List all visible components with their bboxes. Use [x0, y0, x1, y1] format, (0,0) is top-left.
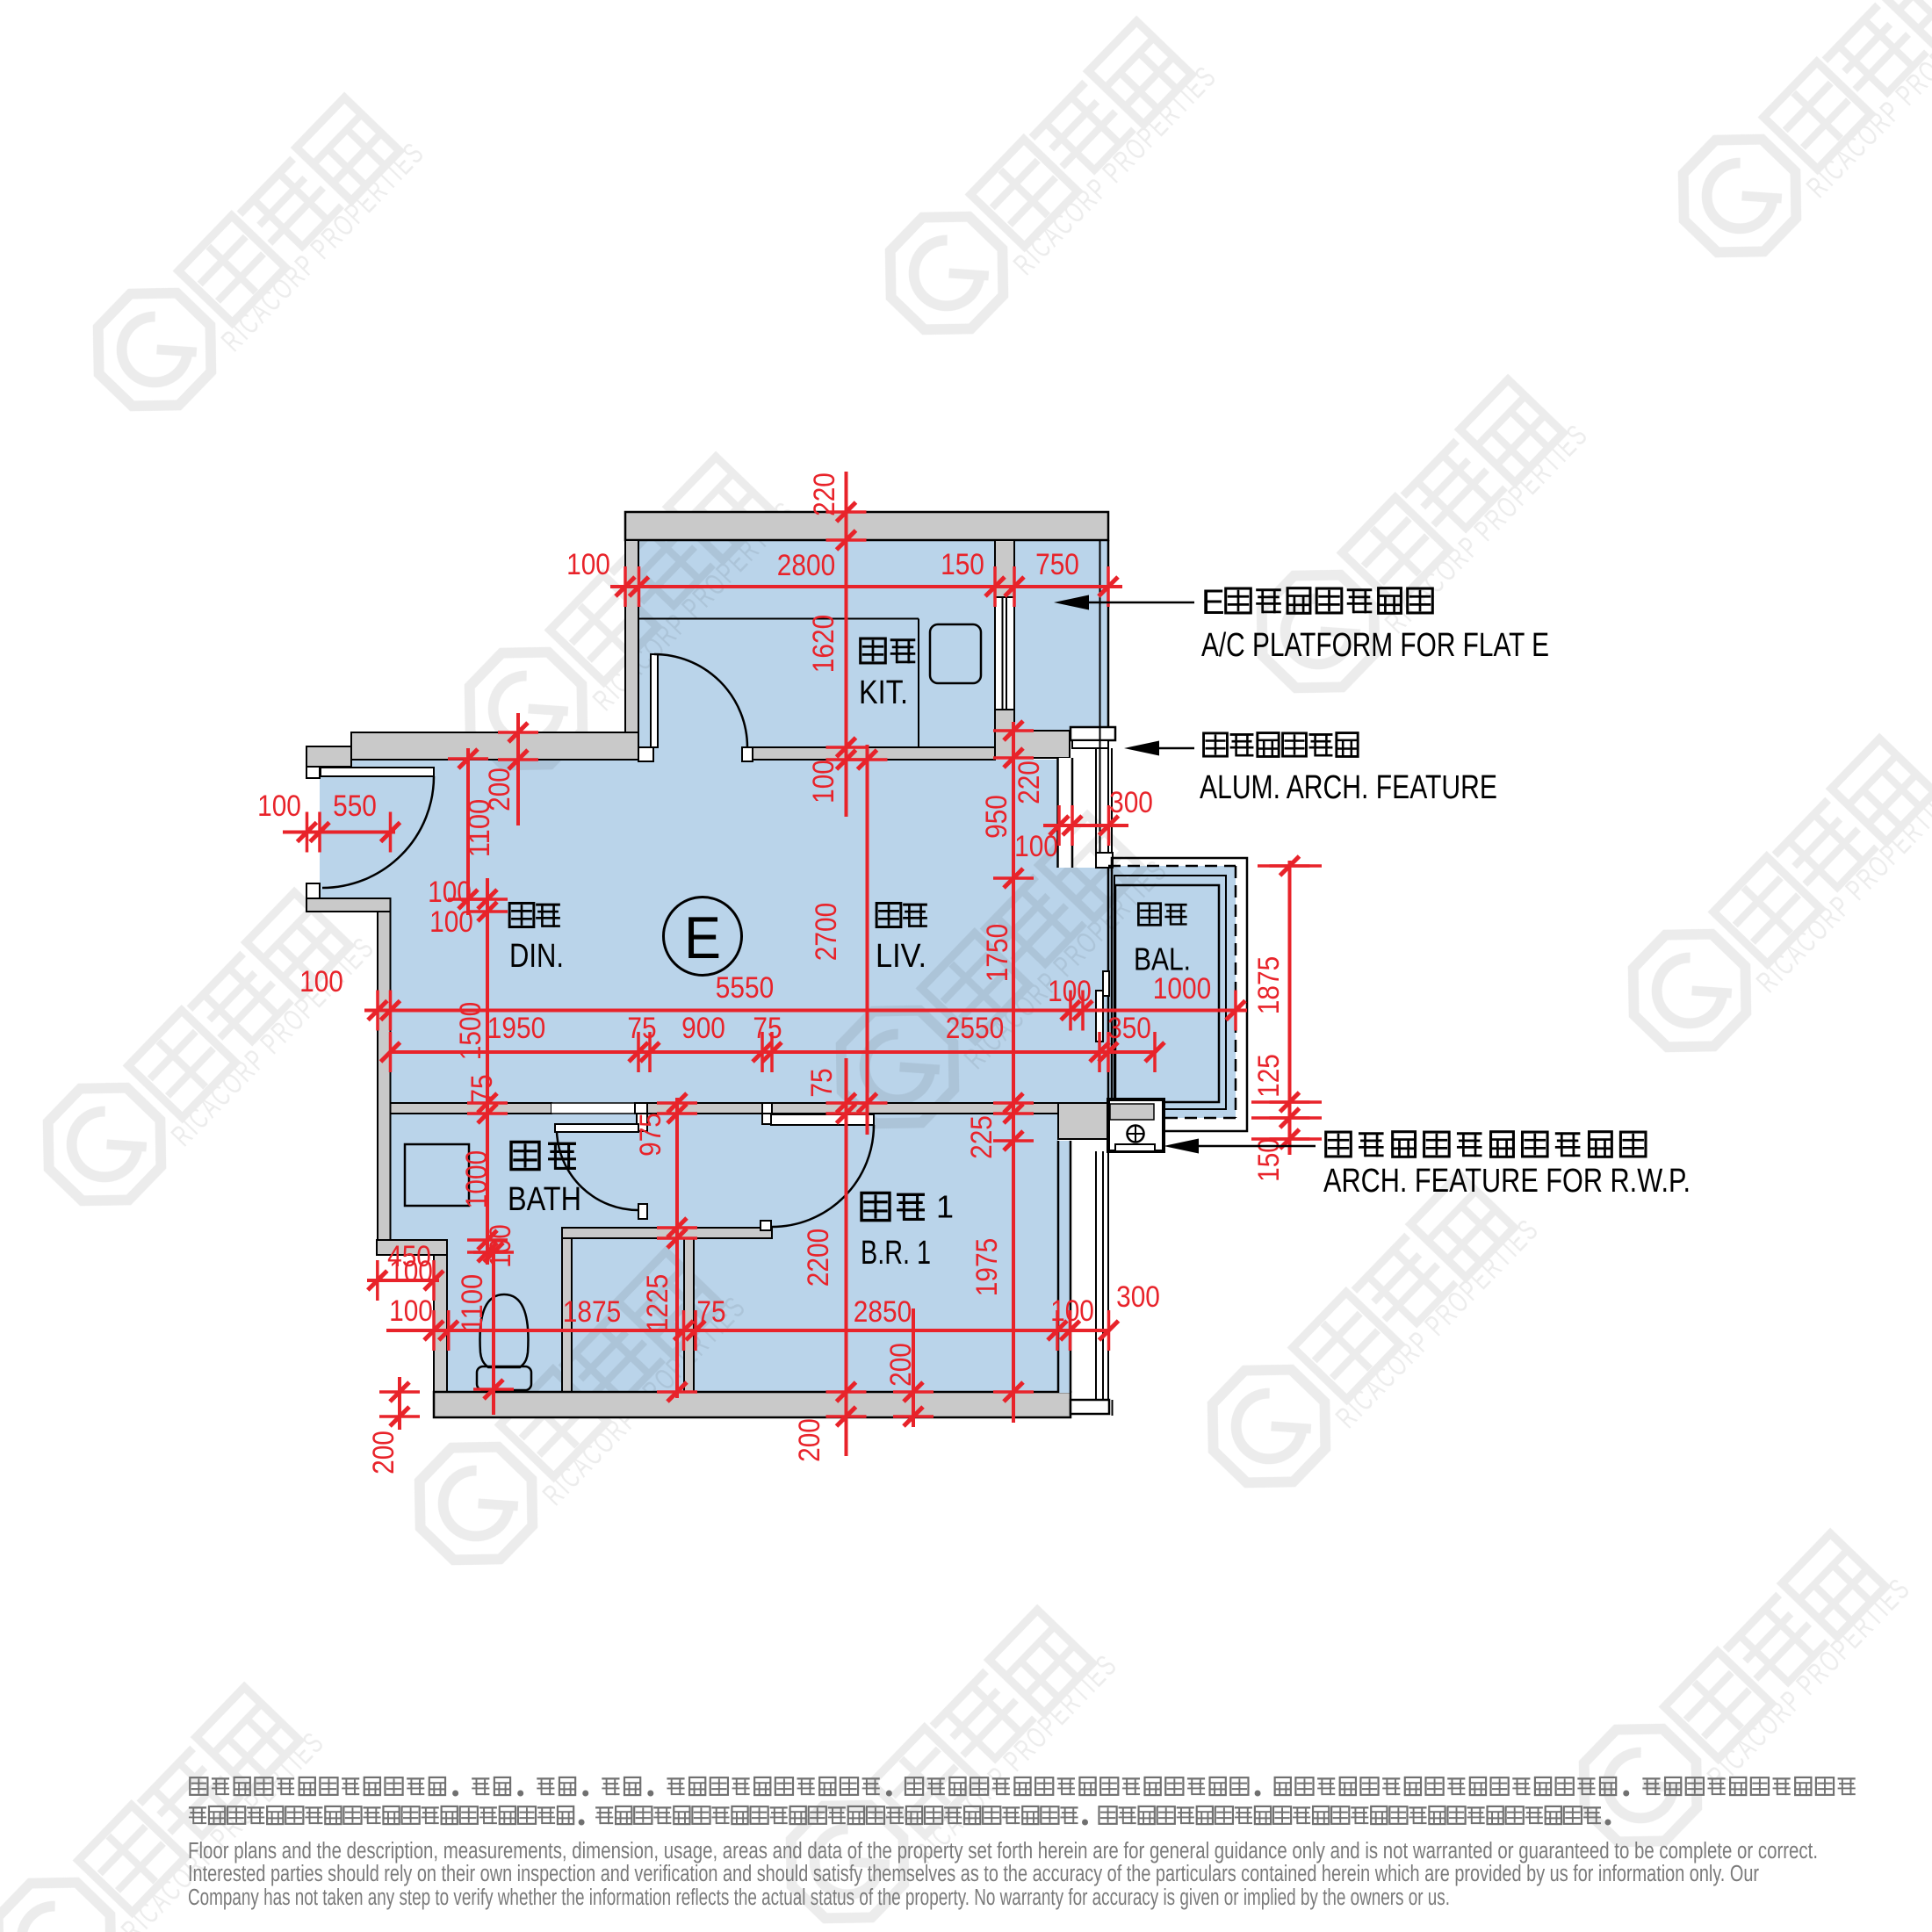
svg-text:950: 950 — [980, 795, 1013, 839]
svg-text:ARCH. FEATURE FOR R.W.P.: ARCH. FEATURE FOR R.W.P. — [1323, 1163, 1690, 1200]
svg-text:75: 75 — [753, 1012, 782, 1045]
svg-text:350: 350 — [1107, 1012, 1151, 1045]
svg-text:1000: 1000 — [460, 1150, 494, 1208]
svg-text:75: 75 — [805, 1068, 839, 1097]
svg-text:200: 200 — [884, 1343, 918, 1387]
svg-text:1000: 1000 — [1153, 972, 1211, 1006]
svg-text:2800: 2800 — [777, 549, 835, 582]
svg-text:100: 100 — [389, 1294, 433, 1328]
svg-text:75: 75 — [627, 1012, 656, 1045]
svg-text:550: 550 — [333, 789, 377, 823]
svg-text:125: 125 — [1252, 1054, 1286, 1098]
svg-text:1975: 1975 — [970, 1238, 1004, 1296]
svg-text:100: 100 — [429, 905, 473, 939]
svg-text:100: 100 — [428, 876, 472, 909]
svg-text:75: 75 — [696, 1295, 725, 1329]
svg-text:100: 100 — [566, 548, 610, 581]
svg-text:2550: 2550 — [946, 1012, 1004, 1045]
svg-text:975: 975 — [634, 1113, 667, 1157]
svg-text:LIV.: LIV. — [876, 938, 926, 975]
svg-text:ALUM. ARCH. FEATURE: ALUM. ARCH. FEATURE — [1200, 769, 1497, 806]
svg-text:DIN.: DIN. — [509, 938, 564, 975]
svg-text:KIT.: KIT. — [859, 674, 908, 711]
svg-text:Interested parties should rely: Interested parties should rely on their … — [188, 1862, 1759, 1886]
svg-text:E: E — [1201, 583, 1225, 622]
svg-text:75: 75 — [465, 1074, 499, 1103]
svg-text:300: 300 — [1109, 786, 1153, 819]
svg-text:900: 900 — [681, 1012, 725, 1045]
svg-text:150: 150 — [941, 548, 984, 581]
svg-text:A/C PLATFORM FOR FLAT E: A/C PLATFORM FOR FLAT E — [1201, 627, 1549, 664]
svg-text:1500: 1500 — [454, 1002, 487, 1060]
svg-text:100: 100 — [389, 1255, 433, 1288]
svg-text:1620: 1620 — [807, 615, 840, 673]
svg-text:100: 100 — [807, 760, 840, 804]
svg-text:2850: 2850 — [854, 1295, 912, 1329]
svg-text:100: 100 — [1048, 975, 1092, 1008]
svg-text:5550: 5550 — [716, 971, 774, 1005]
svg-text:1100: 1100 — [456, 1274, 489, 1332]
svg-text:2200: 2200 — [802, 1229, 835, 1287]
svg-text:100: 100 — [1050, 1294, 1094, 1328]
svg-text:B.R. 1: B.R. 1 — [861, 1235, 931, 1272]
svg-text:1100: 1100 — [463, 799, 496, 857]
svg-text:225: 225 — [965, 1115, 998, 1159]
svg-text:220: 220 — [808, 472, 841, 516]
svg-text:E: E — [684, 905, 721, 971]
svg-text:1875: 1875 — [1252, 956, 1286, 1014]
svg-text:750: 750 — [1035, 548, 1079, 581]
svg-text:BATH: BATH — [508, 1181, 581, 1218]
svg-text:100: 100 — [299, 965, 343, 998]
svg-text:1: 1 — [936, 1189, 954, 1225]
svg-text:100: 100 — [257, 789, 301, 823]
svg-text:300: 300 — [1116, 1280, 1160, 1314]
svg-text:200: 200 — [367, 1431, 400, 1474]
svg-text:1875: 1875 — [563, 1295, 621, 1329]
svg-text:1750: 1750 — [981, 924, 1014, 982]
svg-text:1225: 1225 — [641, 1274, 674, 1332]
svg-text:150: 150 — [1252, 1138, 1286, 1182]
svg-text:220: 220 — [1013, 761, 1046, 804]
svg-text:100: 100 — [1014, 830, 1058, 863]
svg-text:BAL.: BAL. — [1134, 941, 1191, 977]
svg-text:Floor plans and the descriptio: Floor plans and the description, measure… — [188, 1839, 1818, 1864]
svg-text:Company has not taken any step: Company has not taken any step to verify… — [188, 1885, 1450, 1910]
svg-text:200: 200 — [793, 1418, 826, 1462]
svg-text:2700: 2700 — [810, 903, 843, 961]
svg-text:1950: 1950 — [487, 1012, 545, 1045]
